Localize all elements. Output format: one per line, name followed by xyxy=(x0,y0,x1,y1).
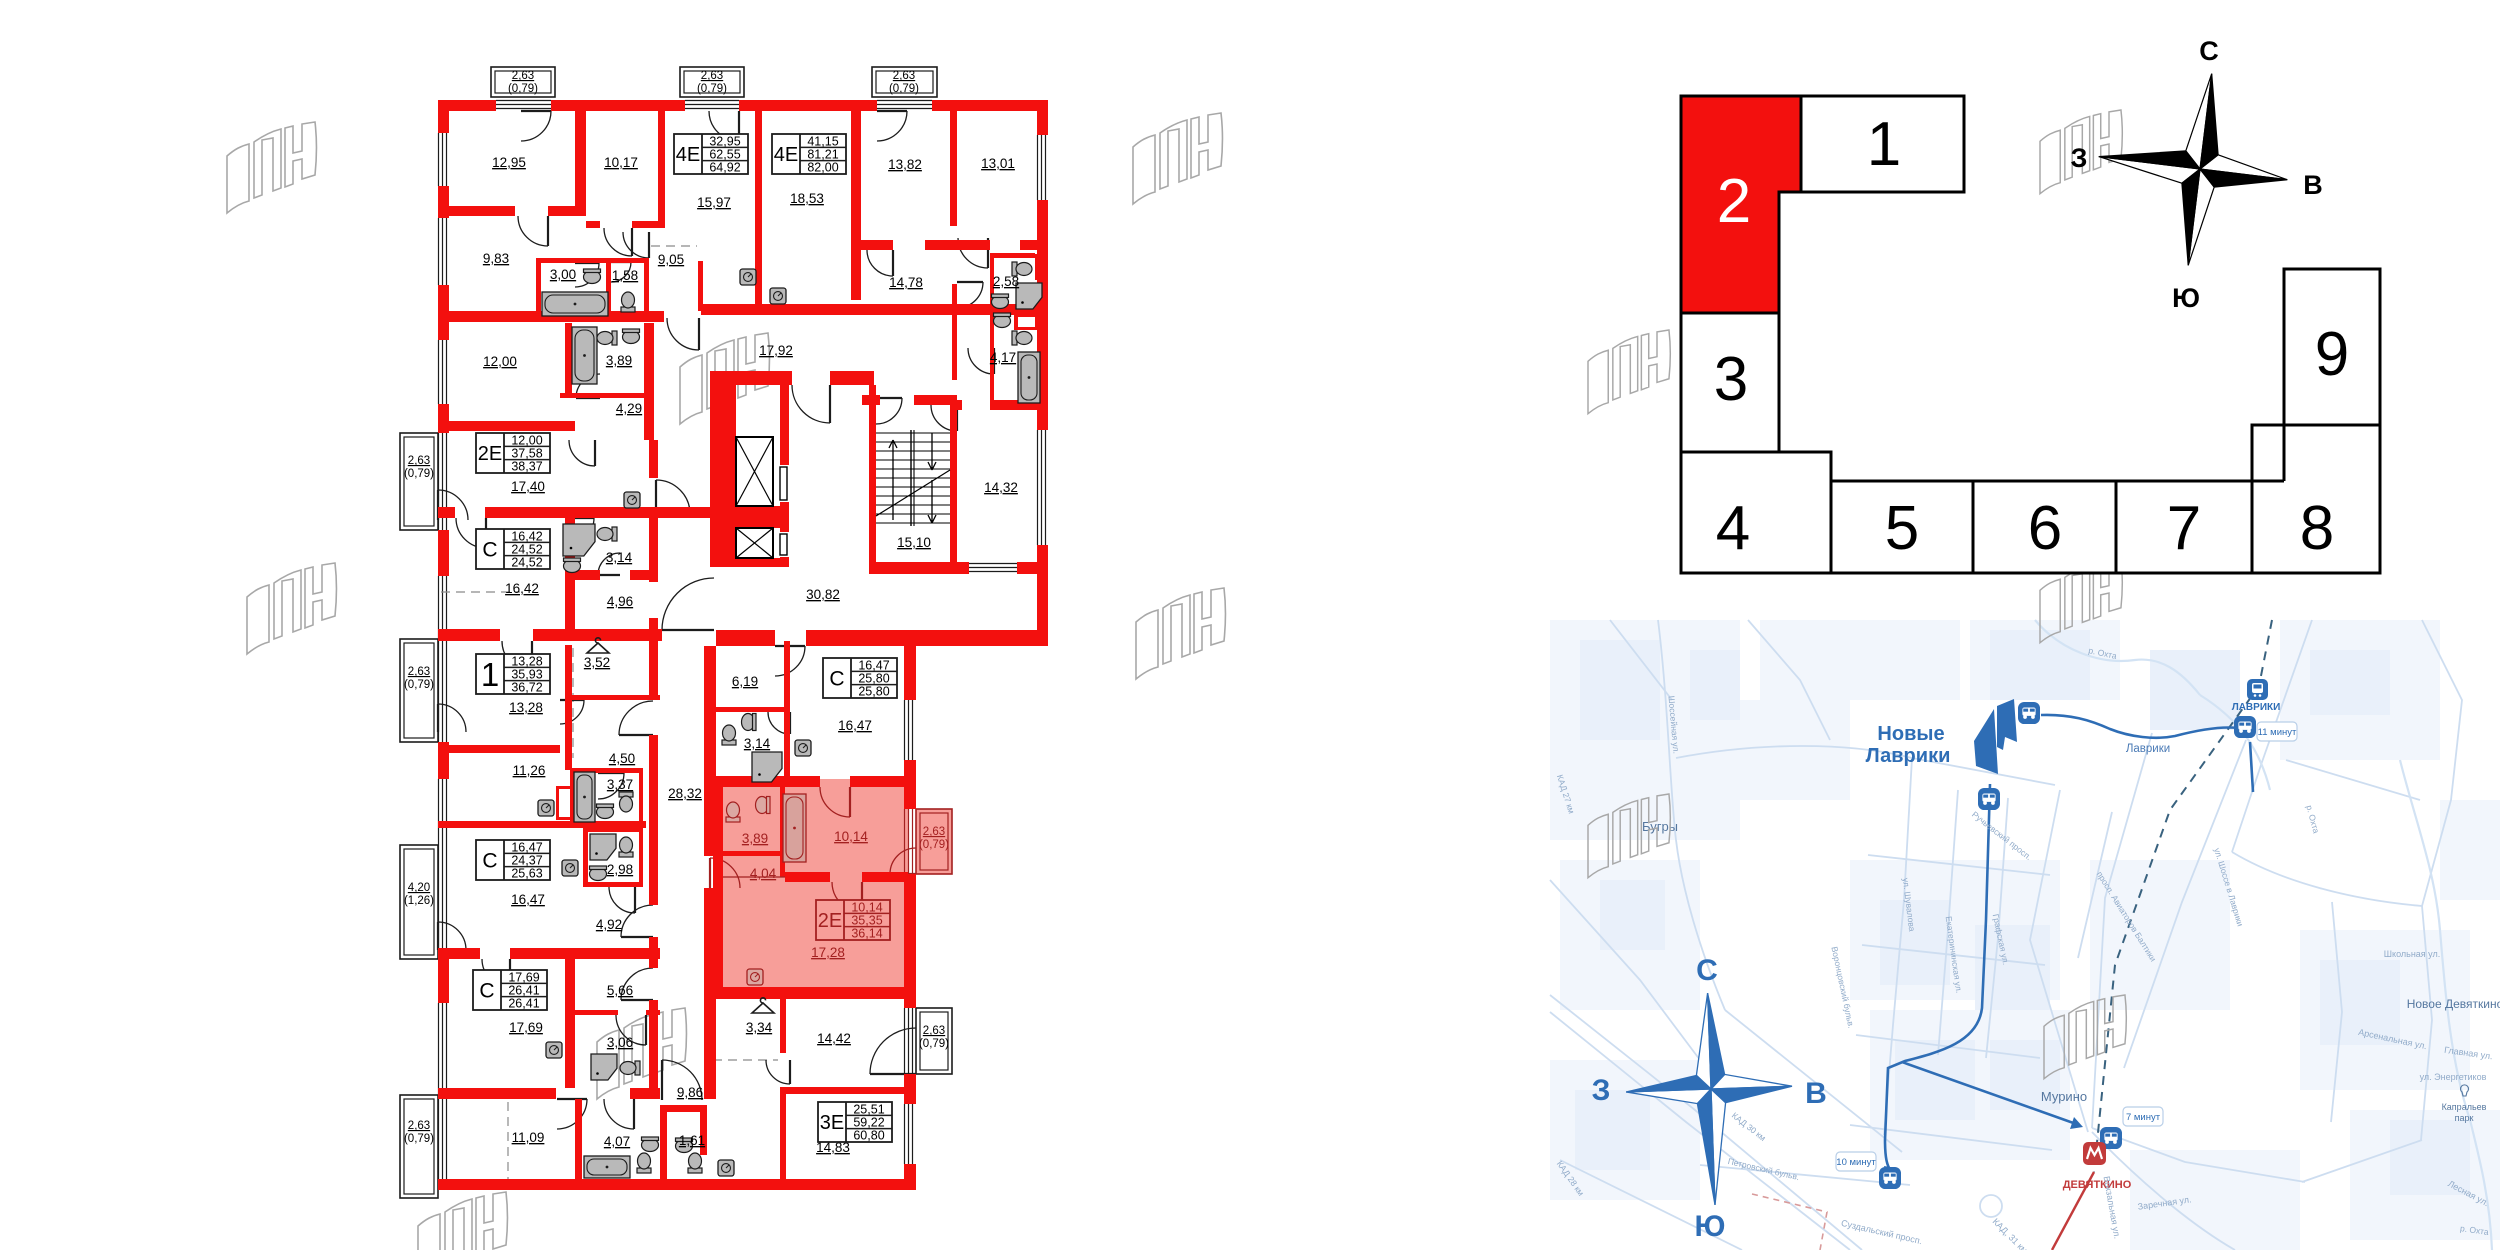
svg-text:Ю: Ю xyxy=(1695,1210,1726,1243)
svg-text:4,07: 4,07 xyxy=(604,1134,630,1149)
svg-text:1: 1 xyxy=(1867,110,1901,179)
svg-text:60,80: 60,80 xyxy=(853,1129,884,1143)
svg-text:16,42: 16,42 xyxy=(505,581,539,596)
svg-text:(0,79): (0,79) xyxy=(919,839,949,851)
svg-text:(0,79): (0,79) xyxy=(697,83,727,95)
svg-text:С: С xyxy=(479,980,494,1003)
svg-text:82,00: 82,00 xyxy=(807,161,838,175)
svg-text:2Е: 2Е xyxy=(478,443,502,465)
svg-text:16,47: 16,47 xyxy=(511,892,545,907)
svg-text:4,92: 4,92 xyxy=(596,917,622,932)
svg-text:(0,79): (0,79) xyxy=(404,468,434,480)
svg-text:З: З xyxy=(2071,143,2088,173)
svg-text:(1,26): (1,26) xyxy=(404,895,434,907)
svg-text:81,21: 81,21 xyxy=(807,148,838,162)
svg-text:10,17: 10,17 xyxy=(604,155,638,170)
svg-text:10,14: 10,14 xyxy=(851,901,882,915)
svg-text:9,05: 9,05 xyxy=(658,252,684,267)
svg-text:13,28: 13,28 xyxy=(511,655,542,669)
svg-text:1: 1 xyxy=(481,656,499,693)
svg-text:(0,79): (0,79) xyxy=(508,83,538,95)
svg-text:28,32: 28,32 xyxy=(668,786,702,801)
svg-text:17,40: 17,40 xyxy=(511,479,545,494)
svg-text:4,04: 4,04 xyxy=(750,866,777,881)
svg-text:2,58: 2,58 xyxy=(993,274,1019,289)
svg-text:7 минут: 7 минут xyxy=(2126,1112,2161,1123)
svg-text:9: 9 xyxy=(2315,320,2349,389)
svg-text:11,26: 11,26 xyxy=(513,763,546,778)
svg-text:Новые: Новые xyxy=(1877,723,1944,745)
svg-text:14,42: 14,42 xyxy=(817,1031,851,1046)
svg-text:4,20: 4,20 xyxy=(408,882,430,894)
svg-text:Новое Девяткино: Новое Девяткино xyxy=(2407,997,2500,1011)
svg-text:16,47: 16,47 xyxy=(838,718,872,733)
svg-text:64,92: 64,92 xyxy=(709,161,740,175)
svg-text:ДЕВЯТКИНО: ДЕВЯТКИНО xyxy=(2063,1179,2132,1191)
svg-text:5,66: 5,66 xyxy=(607,983,633,998)
svg-text:Бугры: Бугры xyxy=(1642,819,1678,834)
svg-text:Школьная ул.: Школьная ул. xyxy=(2384,949,2440,959)
svg-text:16,42: 16,42 xyxy=(511,530,542,544)
svg-text:3,34: 3,34 xyxy=(746,1020,773,1035)
svg-text:(0,79): (0,79) xyxy=(404,1133,434,1145)
svg-text:36,72: 36,72 xyxy=(511,681,542,695)
svg-text:З: З xyxy=(1592,1074,1611,1107)
svg-text:С: С xyxy=(1696,954,1718,987)
svg-text:5: 5 xyxy=(1885,494,1919,563)
svg-text:24,52: 24,52 xyxy=(511,556,542,570)
svg-text:17,28: 17,28 xyxy=(811,945,845,960)
svg-text:37,58: 37,58 xyxy=(511,447,542,461)
svg-text:8: 8 xyxy=(2300,494,2334,563)
svg-text:35,93: 35,93 xyxy=(511,668,542,682)
svg-text:2Е: 2Е xyxy=(818,910,842,932)
svg-text:2,63: 2,63 xyxy=(408,666,430,678)
svg-text:4,29: 4,29 xyxy=(616,401,642,416)
svg-text:Мурино: Мурино xyxy=(2041,1089,2087,1104)
svg-text:11 минут: 11 минут xyxy=(2258,727,2297,738)
svg-text:41,15: 41,15 xyxy=(807,135,838,149)
svg-text:12,00: 12,00 xyxy=(511,434,542,448)
svg-text:13,01: 13,01 xyxy=(981,156,1015,171)
svg-text:12,95: 12,95 xyxy=(492,155,526,170)
svg-text:26,41: 26,41 xyxy=(508,997,539,1011)
svg-text:9,83: 9,83 xyxy=(483,251,509,266)
svg-text:11,09: 11,09 xyxy=(512,1130,545,1145)
svg-text:2,63: 2,63 xyxy=(408,1120,430,1132)
svg-text:3,37: 3,37 xyxy=(607,777,633,792)
svg-text:3,14: 3,14 xyxy=(744,736,771,751)
svg-text:4Е: 4Е xyxy=(774,144,798,166)
svg-text:16,47: 16,47 xyxy=(858,659,889,673)
svg-text:(0,79): (0,79) xyxy=(889,83,919,95)
svg-text:36,14: 36,14 xyxy=(851,927,882,941)
svg-text:9,86: 9,86 xyxy=(677,1085,703,1100)
svg-text:25,80: 25,80 xyxy=(858,685,889,699)
svg-text:ЛАВРИКИ: ЛАВРИКИ xyxy=(2232,702,2281,713)
svg-text:3Е: 3Е xyxy=(820,1112,844,1134)
svg-text:С: С xyxy=(482,539,497,562)
svg-text:3,00: 3,00 xyxy=(550,267,576,282)
svg-text:Капральев: Капральев xyxy=(2442,1102,2487,1112)
svg-text:15,97: 15,97 xyxy=(697,195,731,210)
svg-text:3,14: 3,14 xyxy=(606,550,633,565)
svg-text:С: С xyxy=(829,668,844,691)
svg-text:(0,79): (0,79) xyxy=(404,679,434,691)
svg-text:18,53: 18,53 xyxy=(790,191,824,206)
svg-text:6,19: 6,19 xyxy=(732,674,758,689)
svg-text:2,63: 2,63 xyxy=(923,1025,945,1037)
svg-text:(0,79): (0,79) xyxy=(919,1038,949,1050)
svg-text:25,80: 25,80 xyxy=(858,672,889,686)
svg-text:13,28: 13,28 xyxy=(509,700,543,715)
svg-text:ул. Энергетиков: ул. Энергетиков xyxy=(2420,1072,2487,1082)
svg-text:2,63: 2,63 xyxy=(923,826,945,838)
svg-text:30,82: 30,82 xyxy=(806,587,840,602)
svg-text:13,82: 13,82 xyxy=(888,157,922,172)
svg-text:10 минут: 10 минут xyxy=(1836,1157,1876,1168)
svg-text:59,22: 59,22 xyxy=(853,1116,884,1130)
svg-text:7: 7 xyxy=(2167,494,2201,563)
svg-text:38,37: 38,37 xyxy=(511,460,542,474)
svg-text:2,63: 2,63 xyxy=(893,70,915,82)
svg-text:25,51: 25,51 xyxy=(853,1103,884,1117)
svg-text:С: С xyxy=(2199,36,2219,66)
svg-text:2,98: 2,98 xyxy=(607,862,633,877)
svg-text:10,14: 10,14 xyxy=(834,829,868,844)
svg-text:1,61: 1,61 xyxy=(679,1133,705,1148)
svg-text:2,63: 2,63 xyxy=(701,70,723,82)
svg-text:4,96: 4,96 xyxy=(607,594,633,609)
svg-text:В: В xyxy=(2303,170,2323,200)
svg-text:6: 6 xyxy=(2028,494,2062,563)
svg-text:26,41: 26,41 xyxy=(508,984,539,998)
svg-text:3,52: 3,52 xyxy=(584,655,610,670)
svg-text:3: 3 xyxy=(1714,345,1748,414)
svg-text:4,50: 4,50 xyxy=(609,751,635,766)
svg-text:14,32: 14,32 xyxy=(984,480,1018,495)
svg-text:2: 2 xyxy=(1717,167,1751,236)
svg-text:1,58: 1,58 xyxy=(612,268,638,283)
svg-text:62,55: 62,55 xyxy=(709,148,740,162)
svg-text:14,78: 14,78 xyxy=(889,275,923,290)
svg-text:В: В xyxy=(1805,1077,1827,1110)
svg-text:Ю: Ю xyxy=(2172,283,2200,313)
svg-text:4,17: 4,17 xyxy=(990,350,1016,365)
svg-text:12,00: 12,00 xyxy=(483,354,517,369)
svg-text:3,89: 3,89 xyxy=(742,831,768,846)
svg-text:4: 4 xyxy=(1716,494,1750,563)
svg-text:Лаврики: Лаврики xyxy=(2126,743,2170,755)
svg-text:17,69: 17,69 xyxy=(508,971,539,985)
svg-text:3,06: 3,06 xyxy=(607,1035,633,1050)
svg-text:24,37: 24,37 xyxy=(511,854,542,868)
svg-text:Лаврики: Лаврики xyxy=(1866,745,1951,767)
svg-text:32,95: 32,95 xyxy=(709,135,740,149)
svg-text:17,92: 17,92 xyxy=(759,343,793,358)
svg-text:25,63: 25,63 xyxy=(511,867,542,881)
svg-text:парк: парк xyxy=(2455,1113,2474,1123)
svg-text:17,69: 17,69 xyxy=(509,1020,543,1035)
svg-text:16,47: 16,47 xyxy=(511,841,542,855)
svg-text:24,52: 24,52 xyxy=(511,543,542,557)
svg-text:2,63: 2,63 xyxy=(512,70,534,82)
svg-text:35,35: 35,35 xyxy=(851,914,882,928)
svg-text:4Е: 4Е xyxy=(676,144,700,166)
svg-text:3,89: 3,89 xyxy=(606,353,632,368)
svg-text:2,63: 2,63 xyxy=(408,455,430,467)
svg-text:С: С xyxy=(482,850,497,873)
svg-text:15,10: 15,10 xyxy=(897,535,931,550)
